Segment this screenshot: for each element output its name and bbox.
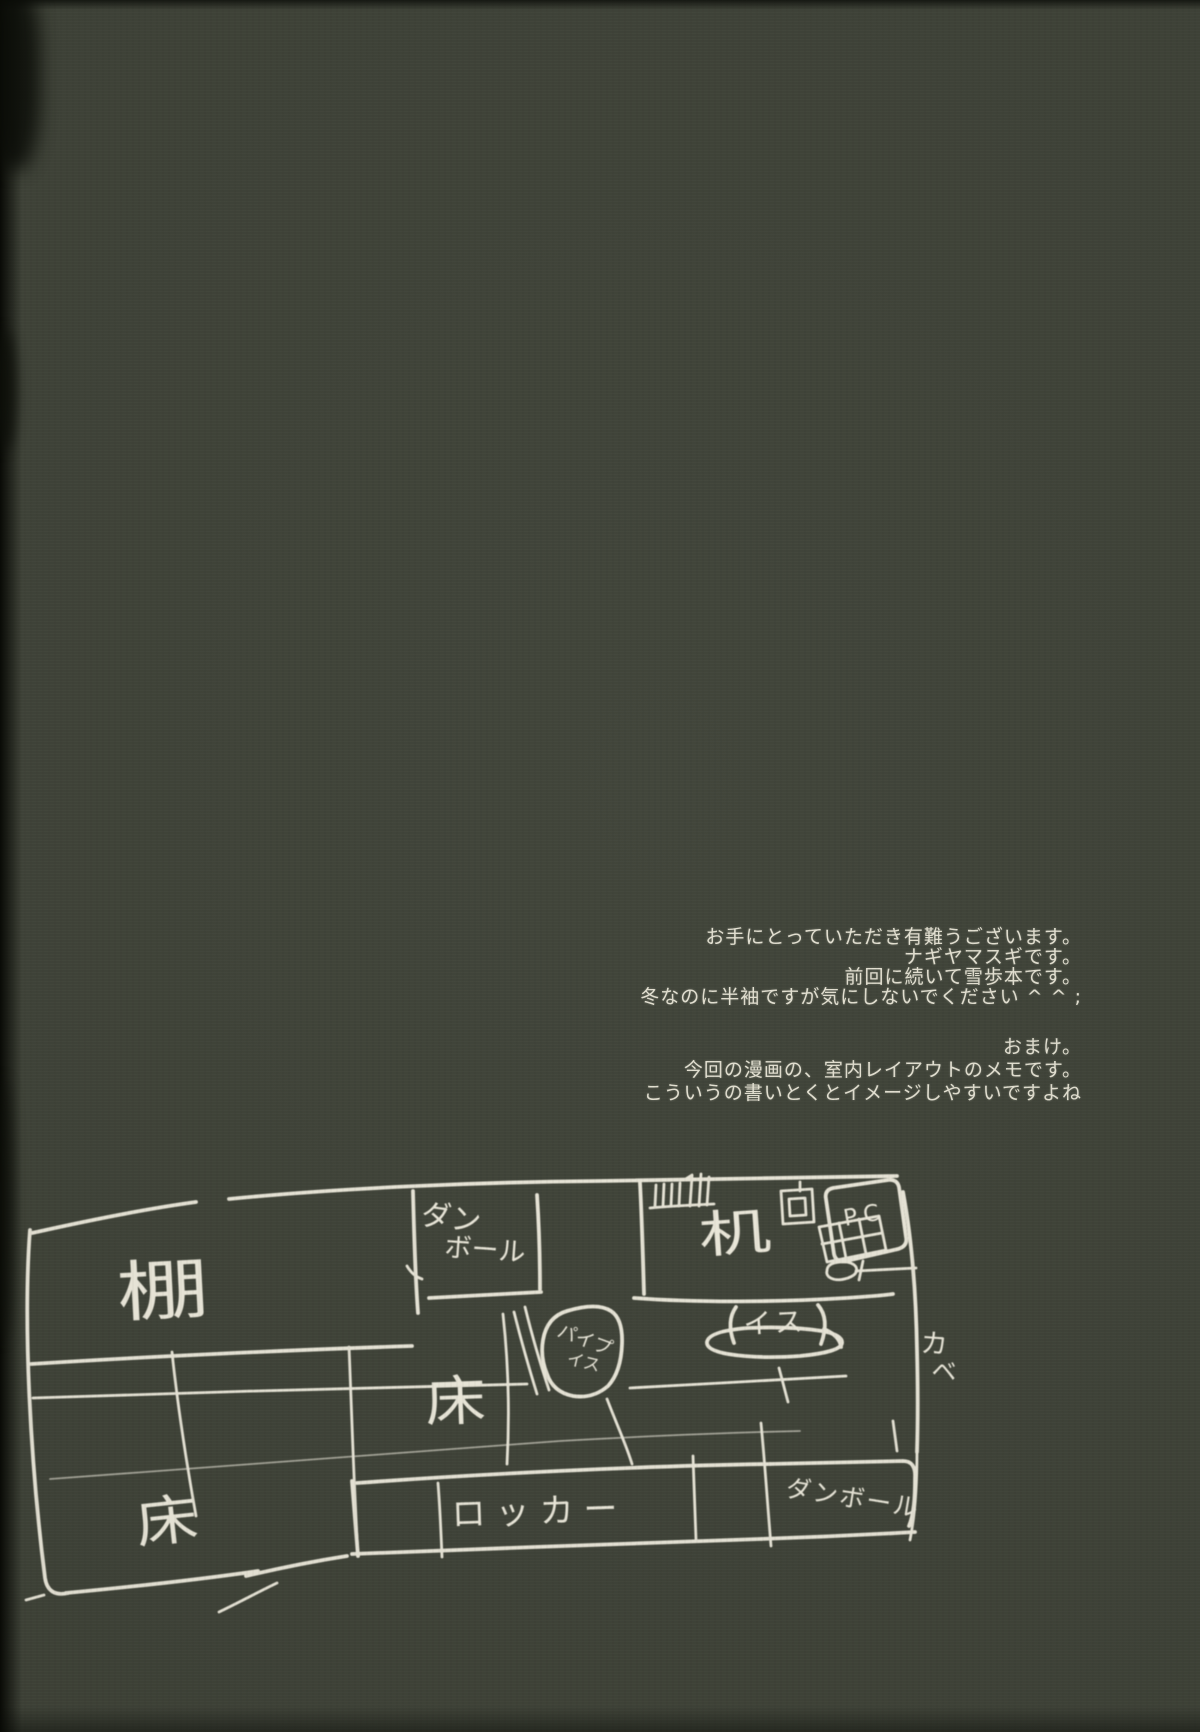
desk-area <box>634 1174 916 1301</box>
sketch-label-desk: 机 <box>697 1201 773 1265</box>
scan-edge-top <box>0 0 1200 10</box>
room-layout-sketch: 棚 ダン ボール 机 PC イス パイプ イス 床 床 ロッカー ダンボール カ… <box>0 0 1200 1732</box>
scan-corner-shadow <box>0 0 40 170</box>
sketch-label-locker: ロッカー <box>451 1489 628 1535</box>
sketch-label-cardboard-bottom: ダンボール <box>784 1473 922 1523</box>
sketch-label-chair: イス <box>743 1305 808 1341</box>
scanned-page: お手にとっていただき有難うございます。 ナギヤマスギです。 前回に続いて雪歩本で… <box>0 0 1200 1732</box>
sketch-label-floor-center: 床 <box>424 1369 487 1434</box>
monitor-icon <box>781 1182 814 1224</box>
sketch-label-floor-bottom-left: 床 <box>133 1487 201 1556</box>
scan-edge-left <box>0 0 22 1732</box>
sketch-label-shelf: 棚 <box>115 1250 211 1332</box>
desk-chair-icon <box>827 1261 916 1280</box>
scan-edge-bottom <box>0 1706 1200 1732</box>
sketch-label-cardboard-top-2: ボール <box>444 1232 527 1269</box>
sketch-label-wall-2: ベ <box>931 1356 958 1387</box>
